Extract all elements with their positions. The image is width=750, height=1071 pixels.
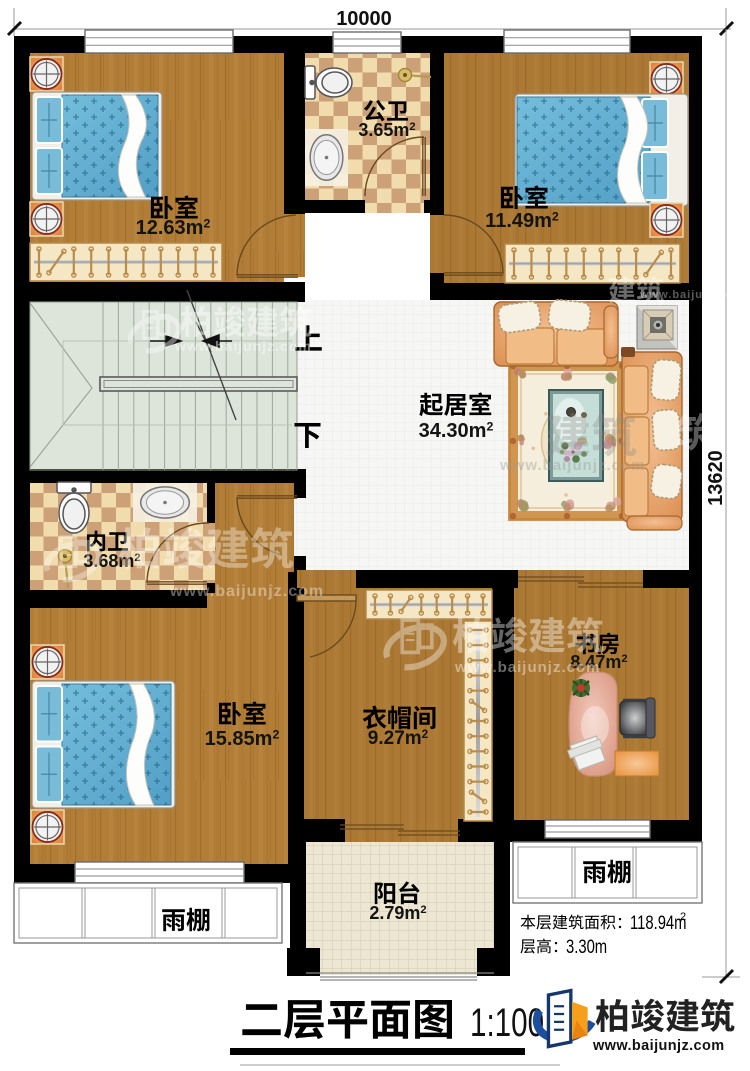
svg-text:13620: 13620 <box>705 450 727 506</box>
svg-text:118.94m: 118.94m <box>630 912 687 933</box>
svg-text:www.baijunjz.com: www.baijunjz.com <box>454 659 600 676</box>
svg-text:2: 2 <box>680 911 686 923</box>
svg-text:11.49m2: 11.49m2 <box>485 210 559 232</box>
svg-text:www.baijunjz.com: www.baijunjz.com <box>592 1038 725 1054</box>
svg-text:9.27m2: 9.27m2 <box>368 728 429 749</box>
svg-text:10000: 10000 <box>336 8 392 30</box>
svg-text:15.85m2: 15.85m2 <box>205 728 280 750</box>
svg-text:34.30m2: 34.30m2 <box>419 420 494 442</box>
svg-text:3.65m2: 3.65m2 <box>358 120 415 140</box>
svg-text:www.baijunjz.com: www.baijunjz.com <box>174 338 312 354</box>
svg-text:www.baijunjz.com: www.baijunjz.com <box>169 583 324 600</box>
svg-text:2.79m2: 2.79m2 <box>369 903 426 923</box>
svg-text:12.63m2: 12.63m2 <box>136 217 211 239</box>
svg-text:www.baijunjz.com: www.baijunjz.com <box>499 457 645 474</box>
svg-text:www.baijunjz.com: www.baijunjz.com <box>639 289 750 301</box>
svg-text:3.30m: 3.30m <box>566 936 607 957</box>
